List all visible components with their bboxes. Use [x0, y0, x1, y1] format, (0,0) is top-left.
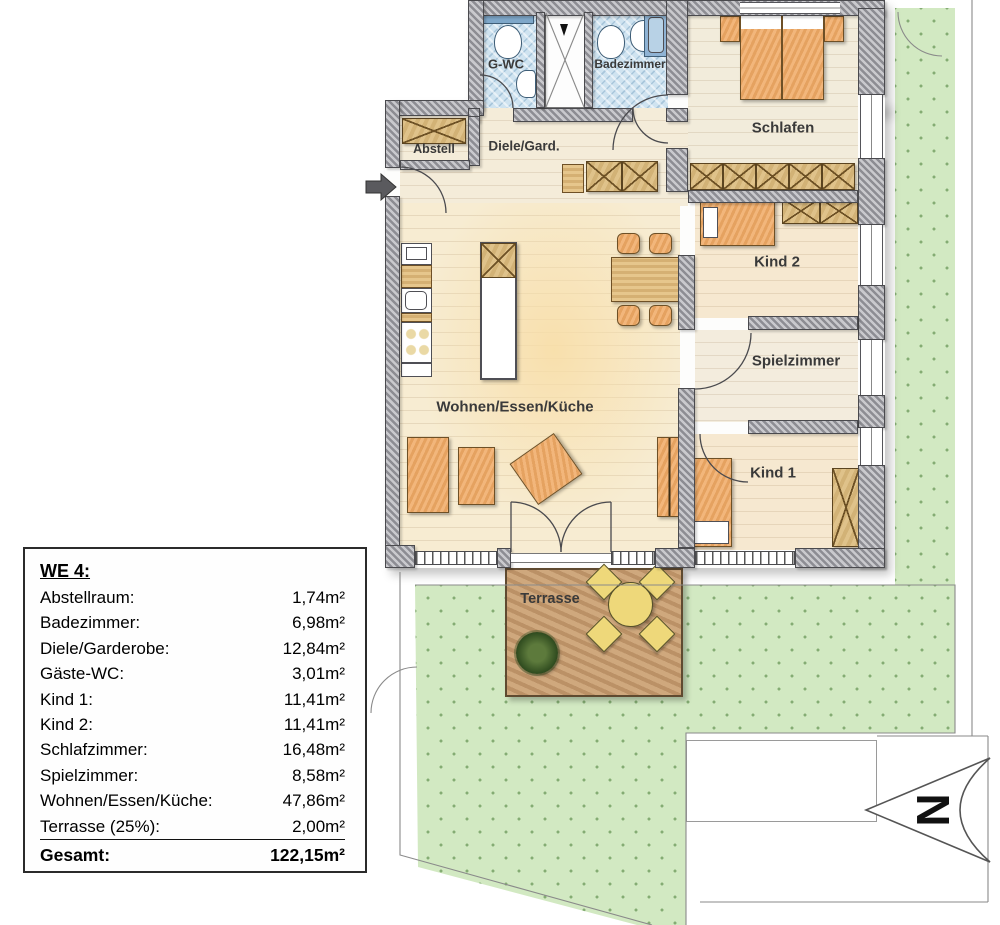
- north-label: N: [907, 793, 959, 826]
- kitchen-counter: [401, 313, 432, 322]
- wardrobe-cell: [789, 163, 822, 190]
- wall-segment: [385, 100, 400, 168]
- kitchen-stove: [401, 322, 432, 363]
- room-label-wohnen: Wohnen/Essen/Küche: [436, 399, 593, 416]
- window: [860, 225, 883, 285]
- hall-chest: [622, 161, 658, 192]
- kitchen-sink-basin: [405, 291, 427, 310]
- wall-segment: [858, 158, 885, 225]
- dining-chair: [617, 233, 640, 254]
- nightstand: [824, 16, 844, 42]
- wall-segment: [385, 196, 400, 548]
- pillow: [690, 521, 729, 544]
- wall-segment: [400, 160, 470, 170]
- sideboard: [562, 164, 584, 193]
- bathtub-inner: [648, 17, 664, 53]
- pillow: [703, 207, 718, 238]
- legend-label: Kind 1:: [40, 687, 93, 712]
- dining-chair: [617, 305, 640, 326]
- wall-segment: [858, 8, 885, 95]
- wall-segment: [678, 388, 695, 548]
- wall-segment: [513, 108, 633, 122]
- legend-row: Diele/Garderobe:12,84m²: [40, 636, 345, 661]
- window-band: [415, 551, 497, 565]
- legend-label: Gäste-WC:: [40, 661, 124, 686]
- wall-segment: [678, 255, 695, 330]
- legend-value: 11,41m²: [284, 712, 345, 737]
- neighbor-patch: [686, 740, 877, 822]
- garden-gate-arc: [371, 667, 417, 713]
- room-label-kind2: Kind 2: [754, 254, 800, 271]
- wardrobe-cell: [756, 163, 789, 190]
- coffee-table: [458, 447, 495, 505]
- area-legend: WE 4: Abstellraum:1,74m² Badezimmer:6,98…: [23, 547, 367, 873]
- room-label-kind1: Kind 1: [750, 465, 796, 482]
- legend-row: Gäste-WC:3,01m²: [40, 661, 345, 686]
- legend-label: Diele/Garderobe:: [40, 636, 169, 661]
- wardrobe-cell: [832, 468, 860, 547]
- wall-segment: [666, 0, 688, 95]
- legend-value: 6,98m²: [292, 610, 345, 635]
- wardrobe-cell: [822, 163, 855, 190]
- wardrobe-cell: [723, 163, 756, 190]
- dining-table: [611, 257, 679, 302]
- legend-title: WE 4:: [40, 558, 345, 585]
- legend-row: Wohnen/Essen/Küche:47,86m²: [40, 788, 345, 813]
- wall-segment: [536, 12, 545, 108]
- wall-segment: [795, 548, 885, 568]
- legend-label: Abstellraum:: [40, 585, 134, 610]
- toilet: [597, 25, 625, 59]
- wall-segment: [468, 0, 484, 110]
- window: [740, 2, 840, 14]
- kitchen-appliance-inner: [406, 247, 427, 260]
- legend-row: Kind 2:11,41m²: [40, 712, 345, 737]
- wall-segment: [584, 12, 593, 108]
- window: [860, 340, 883, 395]
- window: [860, 428, 883, 465]
- kitchen-counter: [401, 265, 432, 288]
- north-arrow-icon: N: [866, 758, 990, 862]
- dining-chair: [649, 305, 672, 326]
- room-label-diele: Diele/Gard.: [488, 139, 559, 154]
- legend-label: Wohnen/Essen/Küche:: [40, 788, 213, 813]
- legend-label: Terrasse (25%):: [40, 814, 160, 839]
- abstell-shelf: [402, 118, 466, 144]
- wall-segment: [497, 548, 511, 568]
- legend-row: Schlafzimmer:16,48m²: [40, 737, 345, 762]
- sofa: [407, 437, 449, 513]
- legend-value: 16,48m²: [283, 737, 345, 762]
- wall-segment: [688, 190, 858, 203]
- legend-total-label: Gesamt:: [40, 843, 110, 868]
- legend-value: 11,41m²: [284, 687, 345, 712]
- legend-value: 8,58m²: [292, 763, 345, 788]
- legend-value: 12,84m²: [283, 636, 345, 661]
- french-door-sill: [511, 553, 611, 563]
- room-label-terrasse: Terrasse: [520, 591, 579, 607]
- terrace-table: [608, 582, 653, 627]
- window-band: [611, 551, 655, 565]
- floorplan-canvas: N G-WC Badezimmer Schlafen Abstell Diele…: [0, 0, 1000, 925]
- wall-segment: [748, 420, 858, 434]
- wall-segment: [858, 285, 885, 340]
- wall-segment: [748, 316, 858, 330]
- kitchen-unit: [401, 363, 432, 377]
- island-block: [481, 243, 516, 278]
- wall-segment: [385, 545, 415, 568]
- wall-segment: [666, 148, 688, 192]
- room-label-schlafen: Schlafen: [752, 120, 815, 137]
- legend-row: Spielzimmer:8,58m²: [40, 763, 345, 788]
- wall-segment: [655, 548, 695, 568]
- dining-chair: [649, 233, 672, 254]
- legend-row-terrasse: Terrasse (25%):2,00m²: [40, 814, 345, 840]
- legend-row: Badezimmer:6,98m²: [40, 610, 345, 635]
- floor-shaft: [545, 12, 585, 108]
- legend-value: 47,86m²: [283, 788, 345, 813]
- legend-label: Badezimmer:: [40, 610, 140, 635]
- legend-value: 1,74m²: [292, 585, 345, 610]
- legend-row: Kind 1:11,41m²: [40, 687, 345, 712]
- legend-value: 2,00m²: [292, 814, 345, 839]
- wall-segment: [858, 395, 885, 428]
- nightstand: [720, 16, 740, 42]
- wash-basin: [516, 70, 536, 98]
- lawn-strip-right: [895, 8, 955, 586]
- room-label-gwc: G-WC: [488, 57, 524, 72]
- legend-label: Spielzimmer:: [40, 763, 138, 788]
- legend-value: 3,01m²: [292, 661, 345, 686]
- wall-segment: [666, 108, 688, 122]
- window-band: [695, 551, 795, 565]
- legend-row: Abstellraum:1,74m²: [40, 585, 345, 610]
- wardrobe-cell: [690, 163, 723, 190]
- room-label-spielzimmer: Spielzimmer: [752, 353, 840, 370]
- hall-chest: [586, 161, 622, 192]
- window: [860, 95, 883, 158]
- floor-playroom: [695, 330, 858, 422]
- legend-total-row: Gesamt:122,15m²: [40, 840, 345, 868]
- potted-plant: [516, 632, 558, 674]
- toilet: [494, 25, 522, 59]
- double-bed: [740, 14, 824, 100]
- room-label-abstell: Abstell: [413, 142, 455, 156]
- wall-segment: [468, 116, 480, 166]
- legend-label: Schlafzimmer:: [40, 737, 148, 762]
- legend-total-value: 122,15m²: [270, 843, 345, 868]
- legend-label: Kind 2:: [40, 712, 93, 737]
- room-label-badezimmer: Badezimmer: [594, 57, 665, 71]
